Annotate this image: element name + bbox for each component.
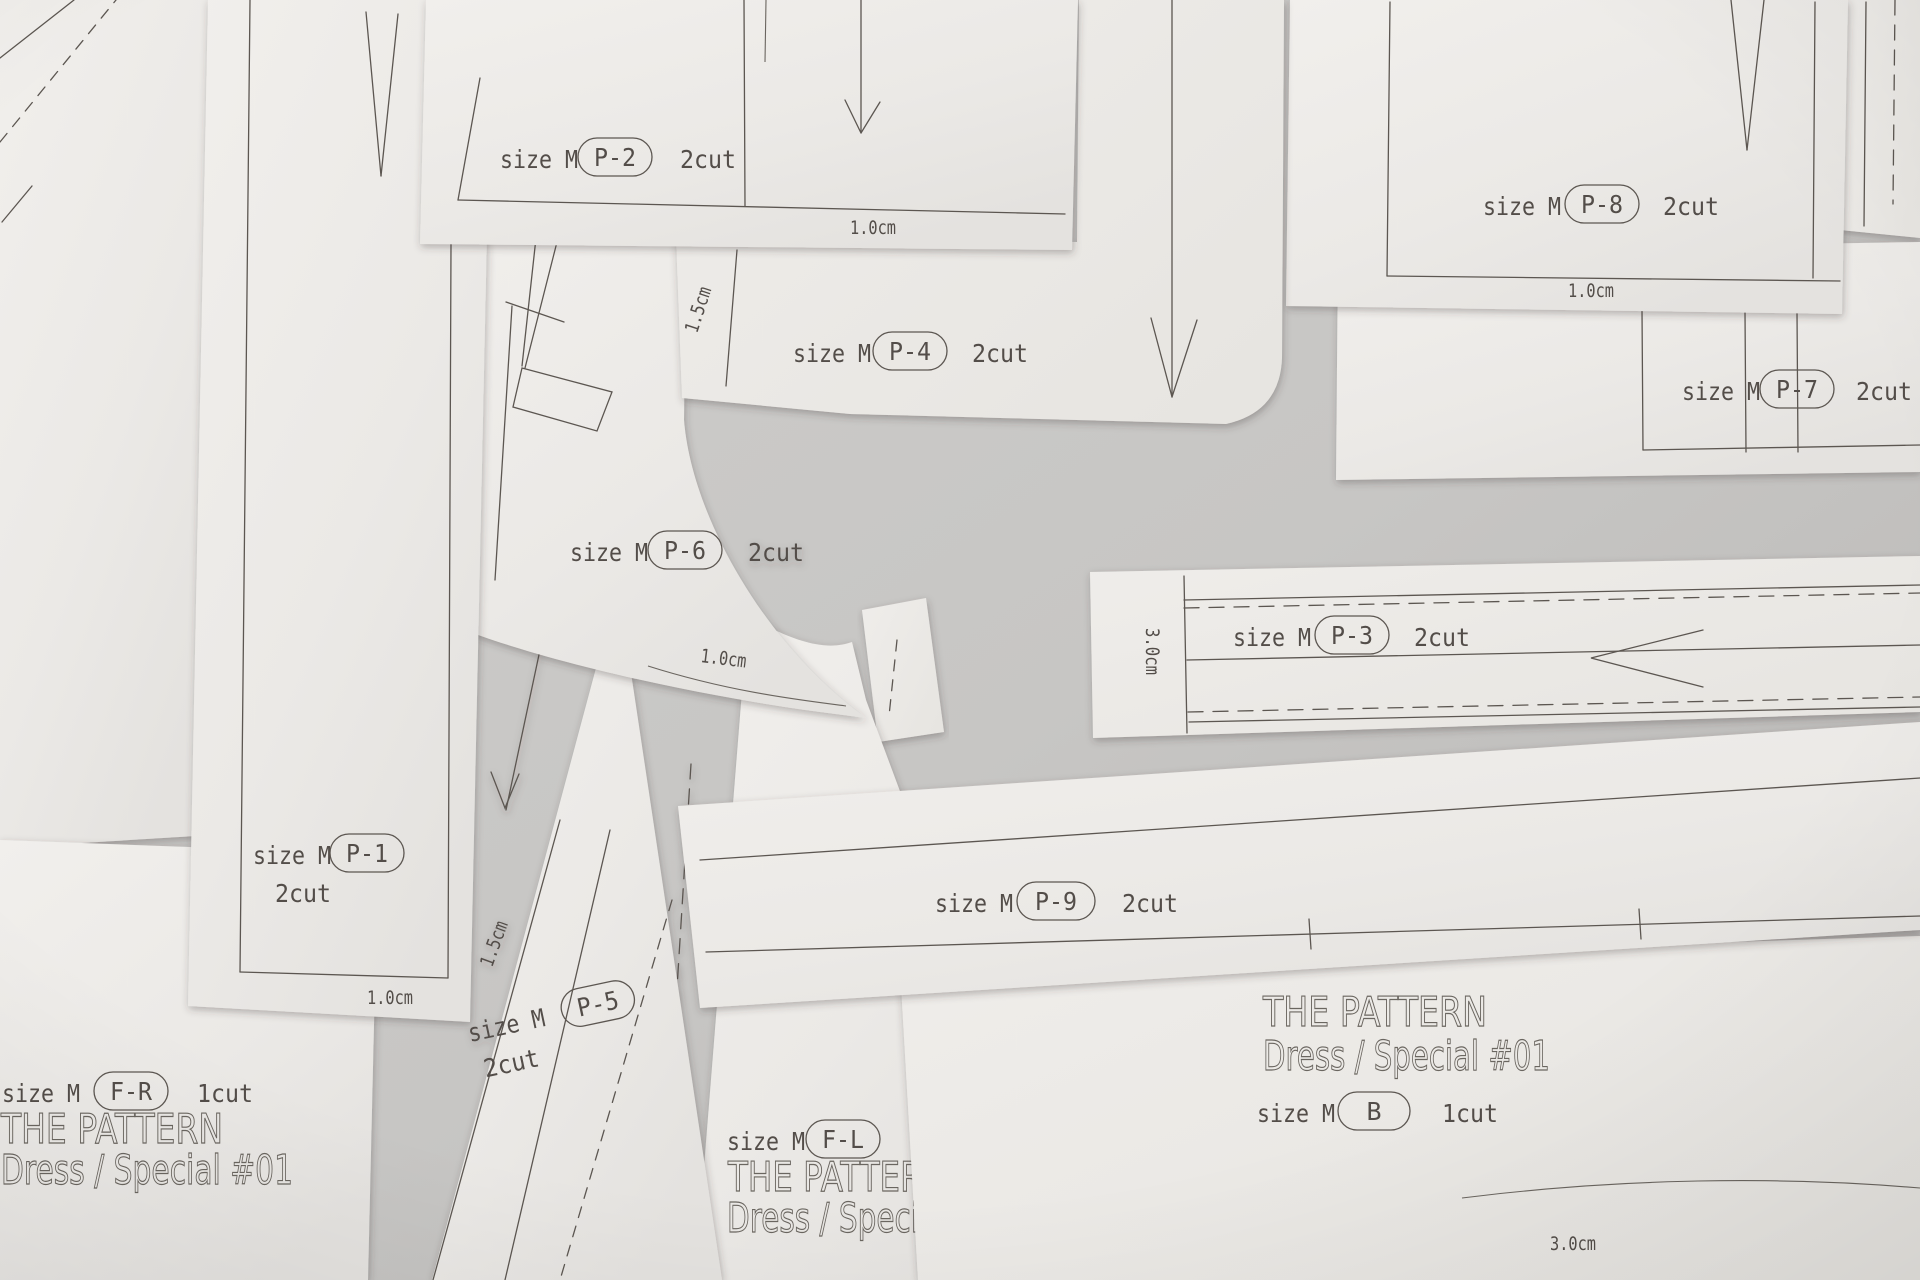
pattern-piece-p2: size M P-2 2cut 1.0cm	[420, 0, 1078, 250]
p6-cut-label: 2cut	[748, 538, 804, 567]
pattern-piece-left	[0, 0, 212, 848]
p3-cut-label: 2cut	[1414, 623, 1470, 652]
p6-size-label: size M	[570, 538, 648, 567]
p1-size-label: size M	[253, 841, 331, 870]
p4-code: P-4	[889, 337, 931, 366]
p9-cut-label: 2cut	[1122, 889, 1178, 918]
p9-code: P-9	[1035, 887, 1077, 916]
p2-measure: 1.0cm	[850, 217, 896, 239]
p4-cut-label: 2cut	[972, 339, 1028, 368]
pattern-photo: size M F-R 1cut THE PATTERN Dress / Spec…	[0, 0, 1920, 1280]
fr-subtitle: Dress / Special #01	[1, 1146, 293, 1194]
pattern-piece-b: THE PATTERN Dress / Special #01 size M B…	[900, 936, 1920, 1280]
b-subtitle: Dress / Special #01	[1263, 1032, 1550, 1080]
b-code: B	[1366, 1097, 1381, 1126]
p8-size-label: size M	[1483, 192, 1561, 221]
p2-size-label: size M	[500, 145, 578, 174]
p8-measure: 1.0cm	[1568, 280, 1614, 302]
p1-code: P-1	[346, 839, 388, 868]
p9-size-label: size M	[935, 889, 1013, 918]
p2-cut-label: 2cut	[680, 145, 736, 174]
pattern-piece-p3: 3.0cm size M P-3 2cut	[1090, 556, 1920, 738]
p3-size-label: size M	[1233, 623, 1311, 652]
pattern-piece-p8: size M P-8 2cut 1.0cm	[1286, 0, 1848, 314]
pattern-piece-top-right	[1840, 0, 1920, 238]
p7-size-label: size M	[1682, 377, 1760, 406]
p7-code: P-7	[1776, 375, 1818, 404]
fr-cut-label: 1cut	[197, 1079, 253, 1108]
b-measure: 3.0cm	[1550, 1233, 1596, 1255]
fl-size-label: size M	[727, 1127, 805, 1156]
p6-code: P-6	[664, 536, 706, 565]
fr-size-label: size M	[2, 1079, 80, 1108]
p3-code: P-3	[1331, 621, 1373, 650]
fr-code: F-R	[110, 1077, 153, 1106]
p8-code: P-8	[1581, 190, 1623, 219]
fl-code: F-L	[822, 1125, 864, 1154]
p7-cut-label: 2cut	[1856, 377, 1912, 406]
pattern-photo-canvas: size M F-R 1cut THE PATTERN Dress / Spec…	[0, 0, 1920, 1280]
p1-measure: 1.0cm	[367, 987, 413, 1009]
p3-measure: 3.0cm	[1141, 628, 1163, 675]
b-cut-label: 1cut	[1442, 1099, 1498, 1128]
p1-cut-label: 2cut	[275, 879, 331, 908]
p4-size-label: size M	[793, 339, 871, 368]
b-title: THE PATTERN	[1262, 988, 1487, 1036]
b-size-label: size M	[1257, 1099, 1335, 1128]
p8-cut-label: 2cut	[1663, 192, 1719, 221]
p2-code: P-2	[594, 143, 636, 172]
